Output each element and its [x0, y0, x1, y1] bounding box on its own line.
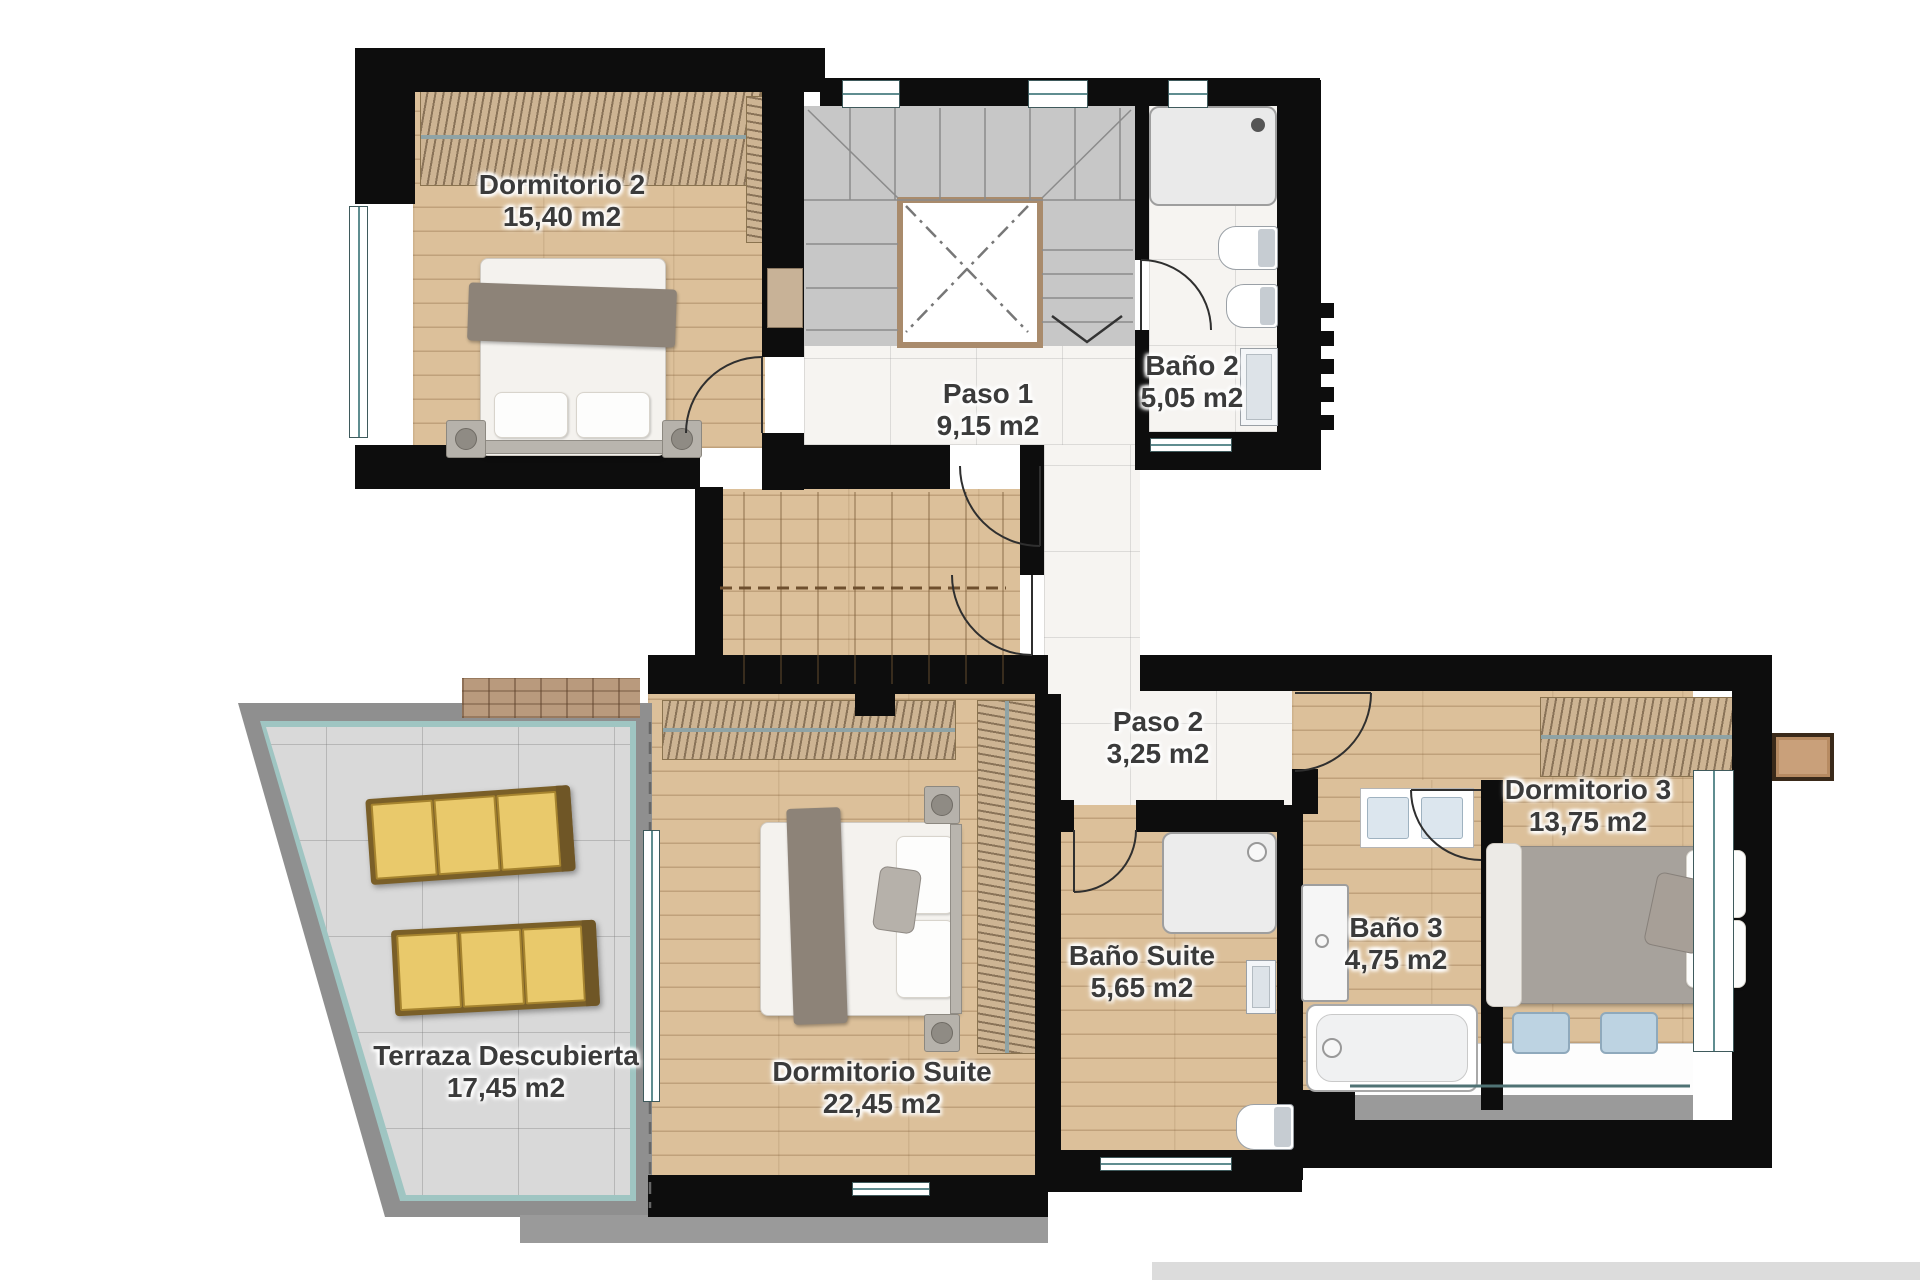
- pillow: [494, 392, 568, 438]
- room-name: Dormitorio 3: [1505, 774, 1671, 806]
- room-area: 5,65 m2: [1069, 972, 1215, 1004]
- wall-segment: [790, 445, 950, 489]
- room-area: 9,15 m2: [937, 410, 1040, 442]
- sun-lounger-1: [365, 785, 575, 885]
- window-north-2: [1028, 80, 1088, 108]
- stool: [1512, 1012, 1570, 1054]
- room-name: Baño 2: [1141, 350, 1244, 382]
- patio-strip-south: [520, 1215, 1048, 1243]
- room-name: Baño Suite: [1069, 940, 1215, 972]
- room-label-bano-3: Baño 3 4,75 m2: [1345, 912, 1448, 976]
- wall-segment: [1035, 694, 1061, 1180]
- vanity-bano-3: [1360, 788, 1474, 848]
- exterior-chimney: [1772, 733, 1834, 781]
- window-suite-south: [852, 1182, 930, 1196]
- cushion: [872, 865, 922, 934]
- wall-segment: [1136, 800, 1284, 832]
- room-label-dormitorio-suite: Dormitorio Suite 22,45 m2: [772, 1056, 991, 1120]
- headboard-dormitorio-2: [480, 440, 666, 454]
- window-dormitorio-3-east: [1693, 770, 1734, 1052]
- bed-throw-dormitorio-2: [467, 282, 677, 347]
- closet-dormitorio-suite: [662, 700, 956, 760]
- wall-segment: [1135, 88, 1149, 260]
- room-name: Baño 3: [1345, 912, 1448, 944]
- bidet-bano-2: [1226, 284, 1278, 328]
- sun-lounger-2: [391, 920, 600, 1017]
- room-label-paso-1: Paso 1 9,15 m2: [937, 378, 1040, 442]
- wall-segment: [1140, 655, 1368, 691]
- room-area: 22,45 m2: [772, 1088, 991, 1120]
- footer-bar: [1152, 1262, 1920, 1280]
- room-area: 17,45 m2: [373, 1072, 639, 1104]
- sink-bano-suite: [1246, 960, 1276, 1014]
- wall-hatch: [1321, 415, 1334, 430]
- wall-segment: [1020, 445, 1044, 575]
- window-bano-suite-south: [1100, 1157, 1232, 1171]
- room-area: 4,75 m2: [1345, 944, 1448, 976]
- wall-hatch: [1321, 331, 1334, 346]
- elevator-shaft: [897, 197, 1043, 348]
- stool: [1600, 1012, 1658, 1054]
- nightstand: [924, 1014, 960, 1052]
- closet-walkin-suite: [977, 700, 1037, 1054]
- side-table-dormitorio-2: [767, 268, 803, 328]
- window-north-3: [1168, 80, 1208, 108]
- window-bano-2-south: [1150, 438, 1232, 452]
- room-name: Paso 2: [1107, 706, 1210, 738]
- room-label-dormitorio-2: Dormitorio 2 15,40 m2: [479, 169, 645, 233]
- room-name: Paso 1: [937, 378, 1040, 410]
- wall-segment: [1368, 655, 1770, 691]
- toilet-bano-suite: [1236, 1104, 1294, 1150]
- wall-segment: [1277, 80, 1321, 470]
- window-dormitorio-2-west: [349, 206, 368, 438]
- room-area: 15,40 m2: [479, 201, 645, 233]
- wall-segment: [855, 694, 895, 716]
- pillow: [576, 392, 650, 438]
- wall-segment: [648, 1175, 1048, 1217]
- room-name: Dormitorio Suite: [772, 1056, 991, 1088]
- bed-sheet-fold: [1486, 843, 1522, 1007]
- room-name: Terraza Descubierta: [373, 1040, 639, 1072]
- wall-hatch: [1321, 359, 1334, 374]
- nightstand: [662, 420, 702, 458]
- headboard-suite: [950, 824, 962, 1014]
- wall-segment: [1044, 800, 1074, 832]
- closet-dormitorio-3: [1540, 697, 1738, 777]
- room-label-bano-2: Baño 2 5,05 m2: [1141, 350, 1244, 414]
- nightstand: [446, 420, 486, 458]
- room-label-bano-suite: Baño Suite 5,65 m2: [1069, 940, 1215, 1004]
- wall-segment: [355, 48, 825, 92]
- room-label-terraza: Terraza Descubierta 17,45 m2: [373, 1040, 639, 1104]
- room-area: 3,25 m2: [1107, 738, 1210, 770]
- room-area: 13,75 m2: [1505, 806, 1671, 838]
- floor-plan-canvas: Dormitorio 2 15,40 m2 Paso 1 9,15 m2 Bañ…: [0, 0, 1920, 1280]
- room-area: 5,05 m2: [1141, 382, 1244, 414]
- room-label-dormitorio-3: Dormitorio 3 13,75 m2: [1505, 774, 1671, 838]
- room-label-paso-2: Paso 2 3,25 m2: [1107, 706, 1210, 770]
- room-name: Dormitorio 2: [479, 169, 645, 201]
- sink-bano-2: [1240, 348, 1278, 426]
- window-suite-west: [643, 830, 660, 1102]
- shower-bano-2: [1149, 106, 1277, 206]
- window-north-1: [842, 80, 900, 108]
- wall-segment: [355, 48, 415, 204]
- toilet-bano-2: [1218, 226, 1278, 270]
- wall-segment: [648, 655, 1048, 694]
- shower-bano-suite: [1162, 832, 1277, 934]
- bathtub-bano-3: [1306, 1004, 1478, 1092]
- bed-throw-suite: [786, 807, 848, 1025]
- nightstand: [924, 786, 960, 824]
- shower-bano-3: [1301, 884, 1349, 1002]
- wall-hatch: [1321, 303, 1334, 318]
- wall-segment: [1300, 1120, 1772, 1168]
- wall-hatch: [1321, 387, 1334, 402]
- stone-wall-terrace: [462, 678, 640, 718]
